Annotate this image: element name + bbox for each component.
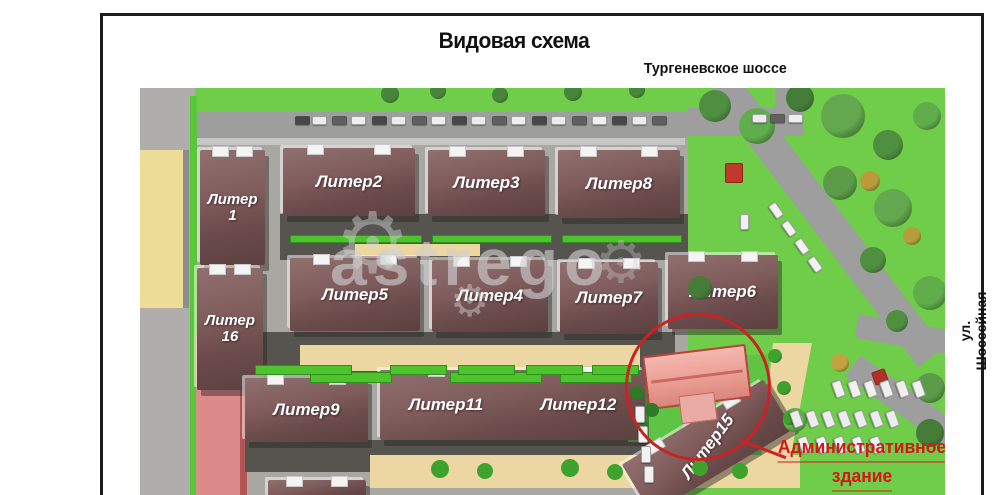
building-liter9: Литер9 [245, 378, 368, 442]
car-icon [740, 214, 749, 230]
building-liter3: Литер3 [428, 150, 545, 216]
car-icon [431, 116, 446, 125]
building-label: Литер1 [207, 192, 257, 224]
building-liter1: Литер1 [200, 150, 265, 265]
car-icon [641, 446, 651, 463]
planter-strip [562, 235, 682, 243]
building-partial-bottom [268, 480, 366, 495]
car-icon [532, 116, 547, 125]
car-icon [372, 116, 387, 125]
tree-icon [823, 166, 857, 200]
bush-icon [732, 463, 748, 479]
car-icon [312, 116, 327, 125]
site-plan-map: Литер1 Литер16 Литер2 Литер3 Литер8 Лите… [140, 88, 945, 495]
annotation-line1: Административное [778, 434, 945, 463]
planter-strip [255, 365, 352, 375]
building-label: Литер4 [457, 286, 523, 306]
tree-icon [777, 381, 791, 395]
building-liter8: Литер8 [558, 150, 680, 218]
tree-icon [874, 189, 912, 227]
street-label-shosseynaya: ул. Шоссейная [957, 281, 975, 381]
page-title: Видовая схема [410, 28, 619, 54]
building-liter16: Литер16 [197, 268, 263, 390]
planter-strip [390, 365, 447, 375]
car-icon [492, 116, 507, 125]
building-label: Литер8 [586, 174, 652, 194]
building-label: Литер2 [316, 172, 382, 192]
car-icon [471, 116, 486, 125]
building-liter7: Литер7 [560, 262, 658, 334]
bush-icon [431, 460, 449, 478]
car-icon [511, 116, 526, 125]
planter-strip [290, 235, 422, 243]
yellow-building-footprint [140, 150, 189, 308]
tree-icon [688, 276, 712, 300]
street-label-turgenevskoe: Тургеневское шоссе [644, 60, 787, 77]
red-kiosk [725, 163, 743, 183]
tree-icon [768, 349, 782, 363]
tree-icon [831, 354, 849, 372]
car-icon [788, 114, 803, 123]
tree-icon [886, 310, 908, 332]
building-label: Литер5 [322, 285, 388, 305]
car-icon [351, 116, 366, 125]
building-label: Литер12 [541, 395, 617, 415]
car-icon [592, 116, 607, 125]
tree-icon [821, 94, 865, 138]
top-sidewalk [195, 138, 685, 145]
annotation-line2: здание [832, 463, 892, 492]
car-icon [452, 116, 467, 125]
car-icon [644, 466, 654, 483]
building-label: Литер16 [205, 313, 255, 345]
car-icon [332, 116, 347, 125]
car-icon [632, 116, 647, 125]
car-icon [572, 116, 587, 125]
bush-icon [561, 459, 579, 477]
tree-icon [699, 90, 731, 122]
building-liter4: Литер4 [432, 260, 548, 332]
bush-icon [477, 463, 493, 479]
tree-icon [860, 247, 886, 273]
highlight-circle [625, 313, 771, 461]
car-icon [770, 114, 785, 123]
path-row1 [355, 244, 480, 256]
building-label: Литер7 [576, 288, 642, 308]
tree-icon [903, 227, 921, 245]
bush-icon [692, 460, 708, 476]
car-icon [612, 116, 627, 125]
car-icon [412, 116, 427, 125]
building-liter2: Литер2 [283, 148, 415, 216]
building-label: Литер11 [409, 395, 483, 415]
car-icon [652, 116, 667, 125]
planter-strip [458, 365, 515, 375]
car-icon [391, 116, 406, 125]
building-label: Литер3 [453, 173, 519, 193]
bush-icon [607, 464, 623, 480]
admin-building-annotation: Административное здание [777, 434, 945, 492]
planter-strip [526, 365, 583, 375]
tree-icon [860, 171, 880, 191]
view-scheme-page: Видовая схема Тургеневское шоссе ул. Шос… [0, 0, 1000, 495]
tree-icon [873, 130, 903, 160]
car-icon [295, 116, 310, 125]
car-icon [551, 116, 566, 125]
car-icon [752, 114, 767, 123]
planter-strip [432, 235, 552, 243]
building-liter5: Литер5 [290, 258, 420, 331]
building-label: Литер9 [273, 400, 339, 420]
tree-icon [913, 102, 941, 130]
tree-icon [913, 276, 945, 310]
